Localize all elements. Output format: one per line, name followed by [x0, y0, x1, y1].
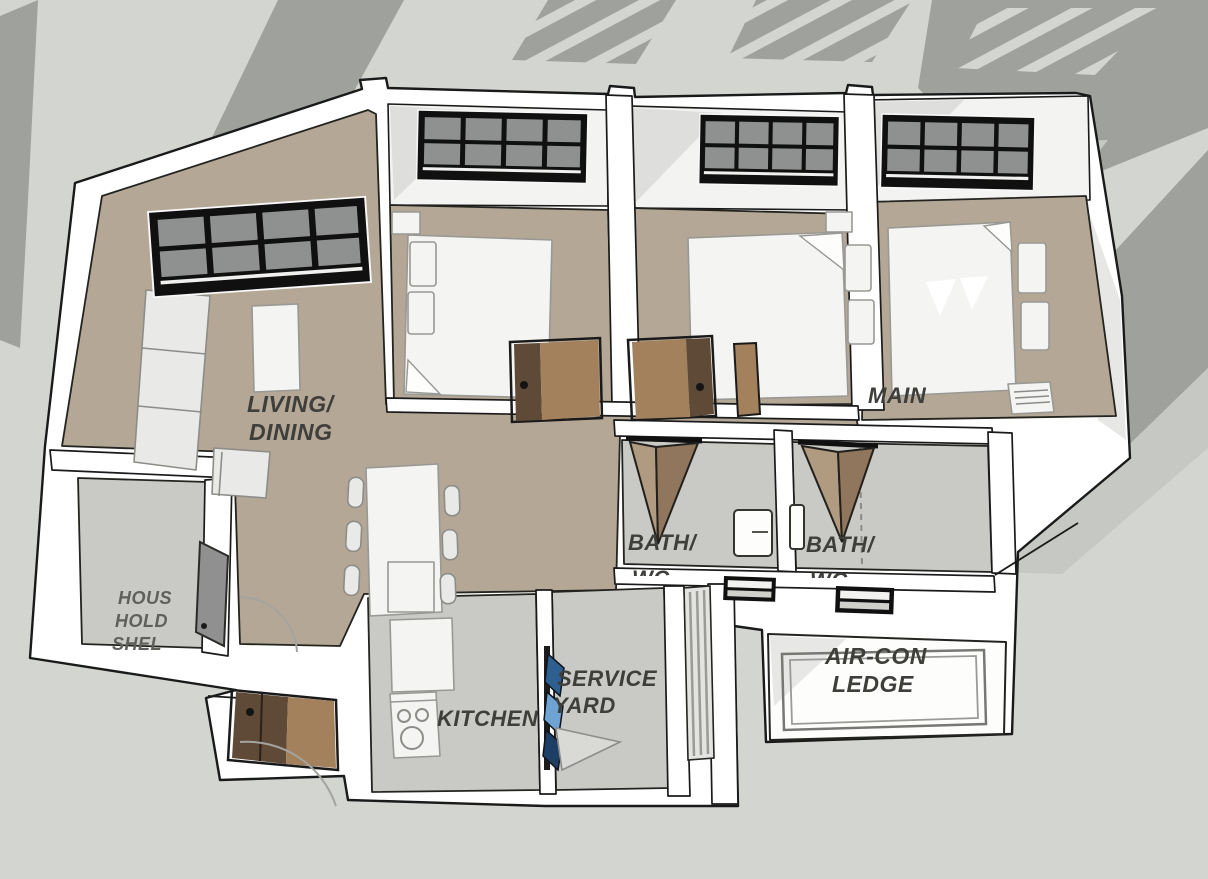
coffee-table [252, 304, 300, 392]
bath2-label-line1: BATH/ [806, 532, 876, 557]
service-yard-label-line2: YARD [553, 693, 616, 718]
svg-text:SHEL: SHEL [112, 634, 162, 654]
svg-text:HOLD: HOLD [115, 611, 168, 631]
bath2-vent-window [835, 586, 894, 614]
kitchen-label: KITCHEN [437, 706, 539, 731]
main-bedroom-window [880, 114, 1035, 191]
bedroom1-door [510, 338, 602, 422]
aircon-label-line2: LEDGE [832, 671, 914, 697]
main-bedroom-label: MAIN [868, 383, 927, 408]
stove-sink-unit [390, 692, 440, 758]
service-corridor-louvers [684, 586, 714, 760]
main-bed [888, 222, 1016, 396]
bath1-vent-window [723, 576, 776, 602]
living-dining-label-line1: LIVING/ [247, 391, 336, 417]
sofa [134, 290, 210, 470]
svg-text:HOUS: HOUS [118, 588, 172, 608]
service-yard-label-line1: SERVICE [557, 666, 658, 691]
main-bedroom-door [734, 343, 760, 416]
bath1-label-line1: BATH/ [628, 530, 698, 555]
living-room-window [148, 197, 371, 297]
dresser [1008, 382, 1054, 414]
floor-plan-3d-render: LIVING/ DINING MAIN BATH/ WC BATH/ WC HO… [0, 0, 1208, 879]
bath1-fixtures [734, 510, 772, 556]
bedroom2-door [628, 336, 716, 420]
bedroom1-window [417, 110, 588, 184]
living-dining-label-line2: DINING [249, 419, 333, 445]
fridge [388, 562, 434, 612]
bedroom2-window [699, 114, 840, 186]
kitchen-counter [390, 618, 454, 692]
aircon-label-line1: AIR-CON [824, 643, 927, 669]
bed-2 [688, 232, 848, 400]
